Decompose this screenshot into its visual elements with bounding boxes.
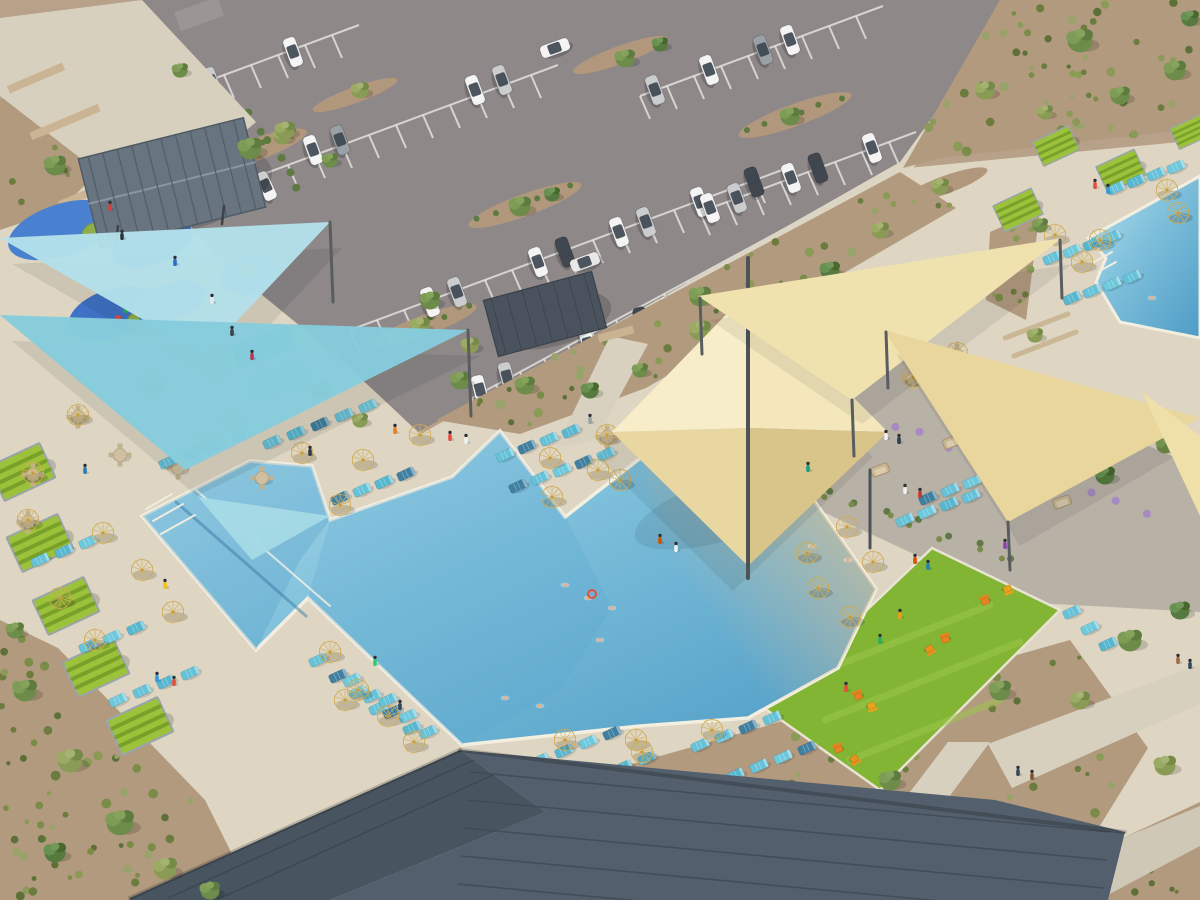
pool-amenity-aerial-rendering (0, 0, 1200, 900)
rendering-canvas (0, 0, 1200, 900)
